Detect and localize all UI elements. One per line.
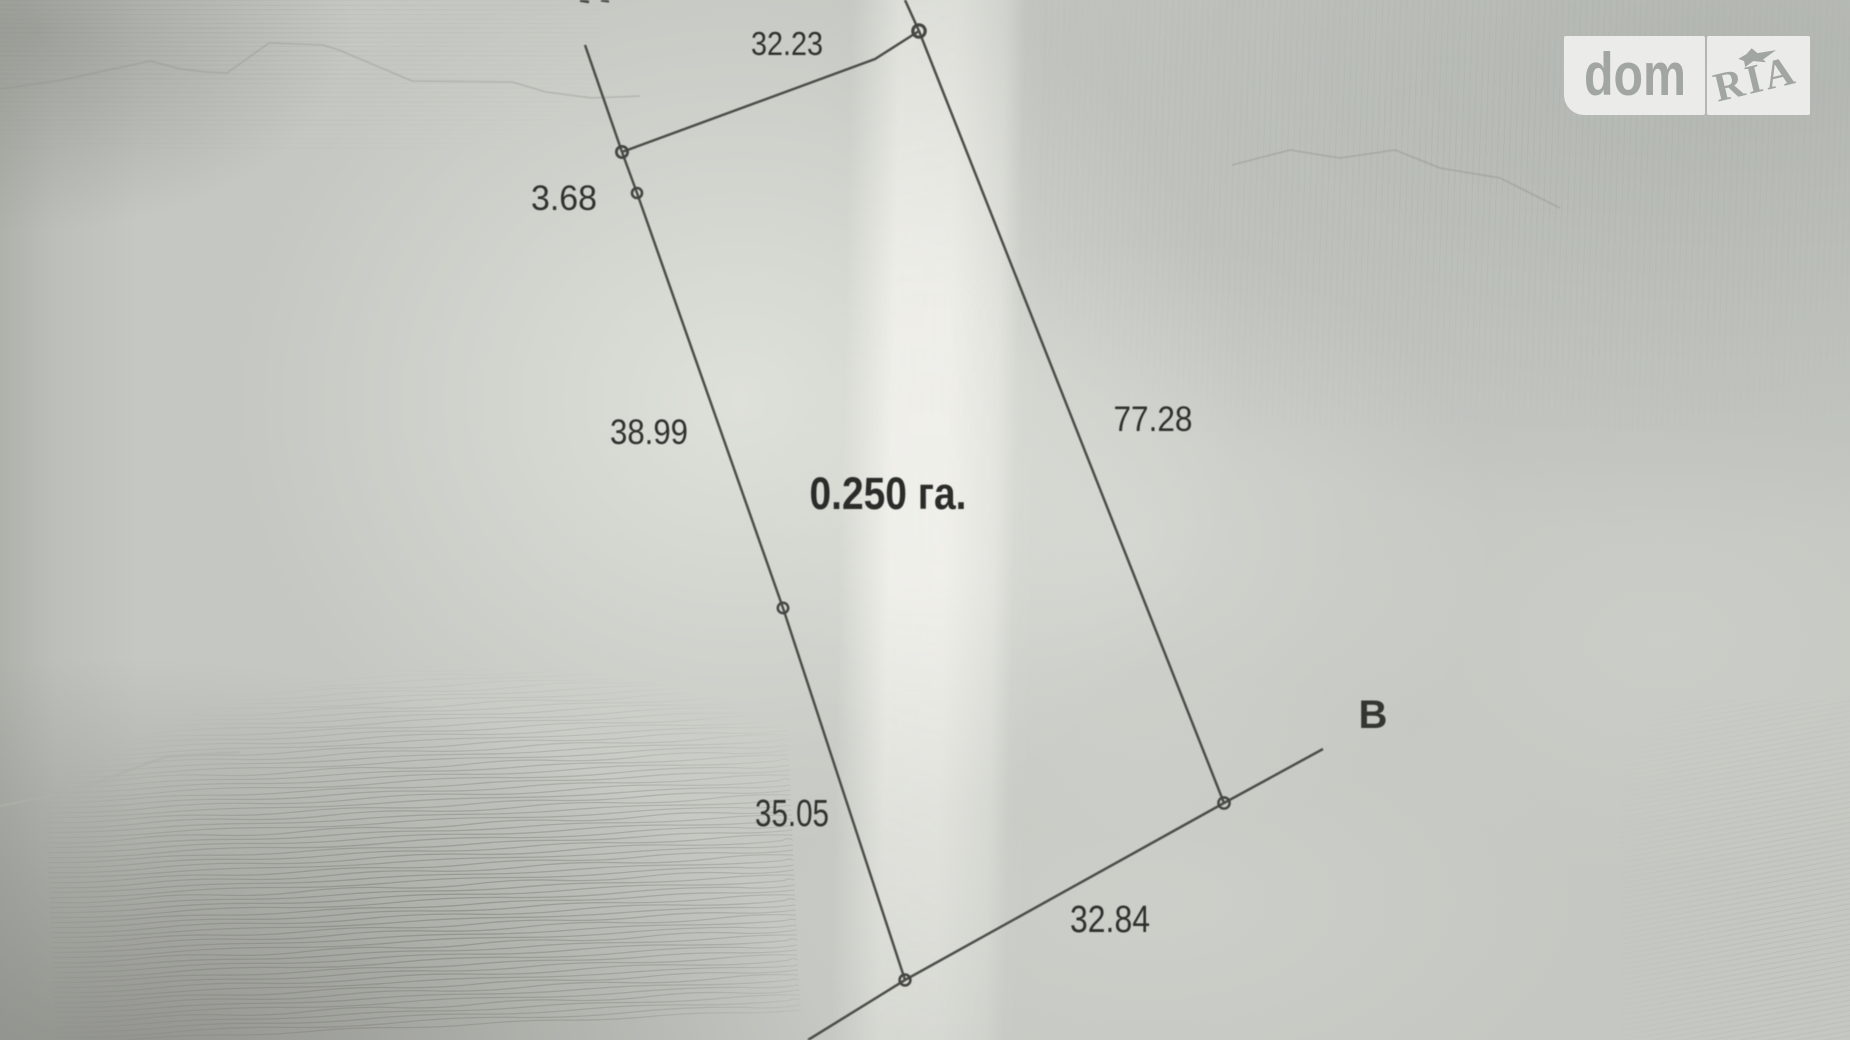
svg-text:3.68: 3.68 [531, 179, 597, 218]
svg-text:В: В [1359, 693, 1388, 737]
svg-text:77.28: 77.28 [1114, 400, 1193, 439]
svg-text:38.99: 38.99 [610, 413, 688, 452]
svg-text:32.84: 32.84 [1070, 899, 1150, 941]
svg-text:0.250 га.: 0.250 га. [810, 468, 967, 519]
svg-text:35.05: 35.05 [755, 793, 829, 835]
svg-text:RIA: RIA [1709, 47, 1799, 111]
svg-text:dom: dom [1584, 41, 1686, 108]
svg-text:32.23: 32.23 [751, 25, 823, 62]
